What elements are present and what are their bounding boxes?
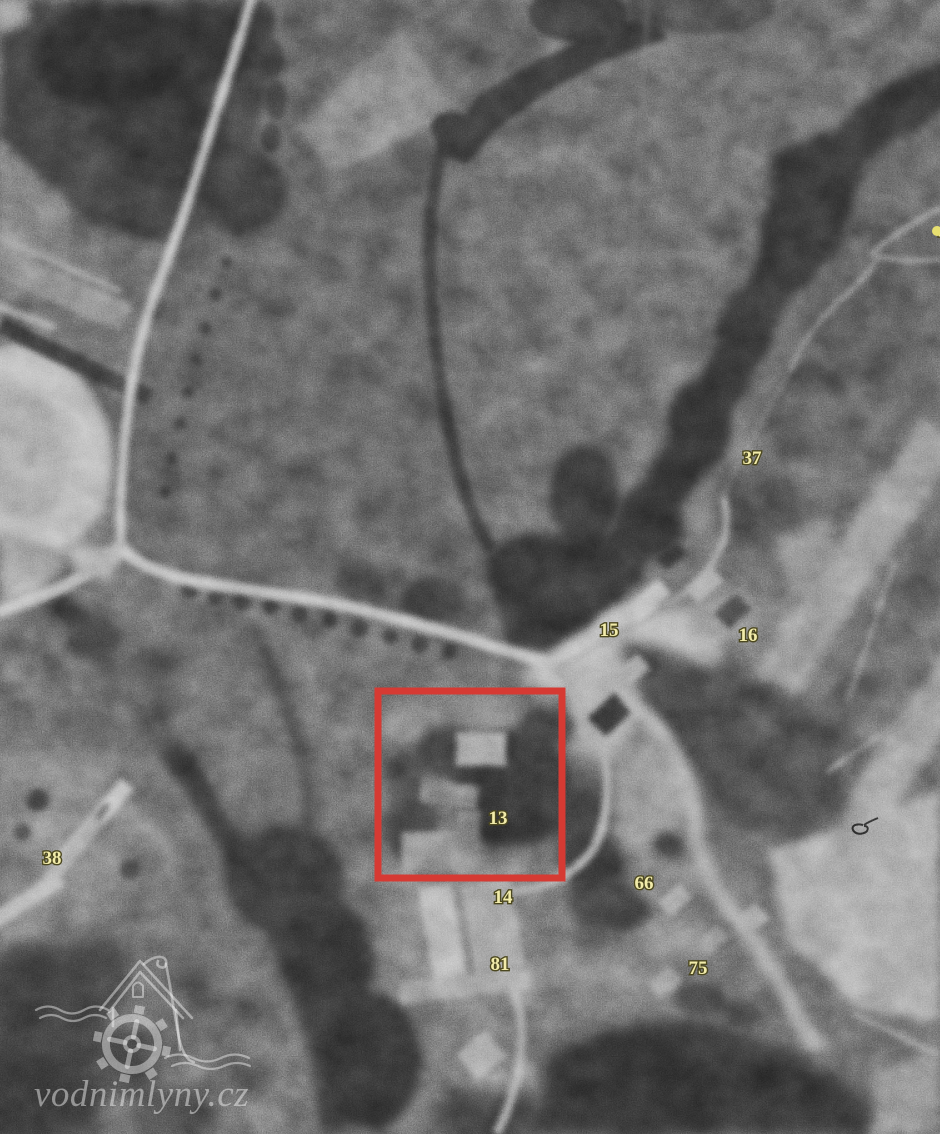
svg-text:75: 75 (689, 958, 708, 979)
svg-text:37: 37 (743, 448, 763, 469)
svg-text:15: 15 (600, 620, 619, 641)
svg-text:38: 38 (43, 848, 62, 869)
svg-text:13: 13 (489, 808, 508, 829)
svg-text:vodnimlyny.cz: vodnimlyny.cz (34, 1074, 249, 1115)
svg-text:81: 81 (491, 954, 510, 975)
svg-text:66: 66 (635, 873, 654, 894)
svg-text:16: 16 (739, 625, 758, 646)
svg-text:14: 14 (494, 887, 514, 908)
